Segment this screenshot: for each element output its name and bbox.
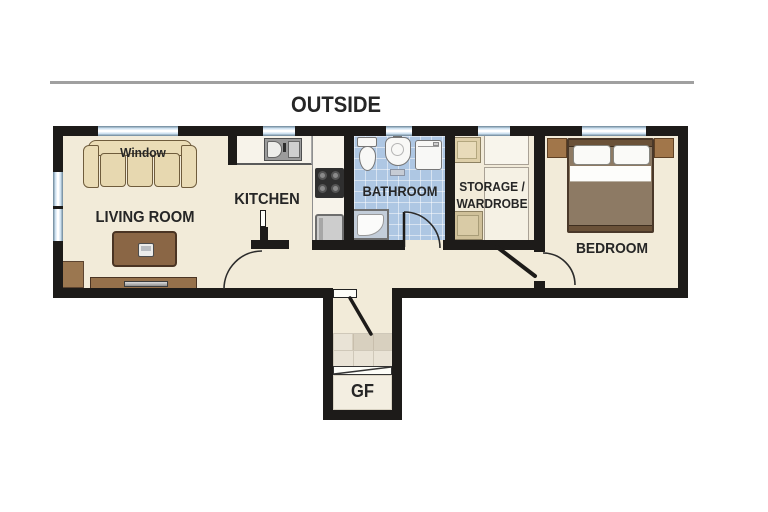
kitchen-counter-top <box>237 136 312 165</box>
vestibule-wall-right <box>392 298 402 420</box>
kitchen-label: KITCHEN <box>221 191 313 208</box>
wall-bottom-left <box>53 288 333 298</box>
window-livingroom-side-upper <box>53 172 63 206</box>
livingroom-door-stub <box>260 227 268 241</box>
front-door-leaf <box>333 366 392 375</box>
shower <box>352 209 389 240</box>
wall-bathroom-left <box>344 126 354 250</box>
kitchen-counter-right <box>312 136 345 250</box>
shower-tray <box>357 214 384 236</box>
pillow-right <box>613 145 650 165</box>
bathroom-label: BATHROOM <box>356 184 444 199</box>
nightstand-right <box>654 138 674 158</box>
sink-basin-left <box>267 141 282 158</box>
bedroom-label: BEDROOM <box>557 241 667 257</box>
outside-boundary-line <box>50 81 694 84</box>
window-livingroom <box>98 126 178 136</box>
kitchen-sink <box>264 138 302 161</box>
window-bathroom <box>386 126 412 136</box>
tv <box>124 281 168 287</box>
bed-footboard <box>569 225 652 231</box>
floor-plan-canvas: OUTSIDE Window LIVING ROOM <box>0 0 768 512</box>
outside-label: OUTSIDE <box>244 93 428 117</box>
livingroom-door-leaf <box>260 210 266 227</box>
bed-sheet <box>570 166 651 182</box>
livingroom-door-tbar <box>251 240 289 249</box>
vestibule-tile-shade <box>352 334 392 350</box>
window-livingroom-side-lower <box>53 209 63 241</box>
window-bedroom <box>582 126 646 136</box>
stove <box>315 168 344 198</box>
wall-bathroom-storage <box>445 126 455 250</box>
window-kitchen <box>263 126 295 136</box>
coffee-table <box>112 231 177 267</box>
sink-faucet <box>283 143 286 152</box>
entrance-gf-label: GF <box>335 382 389 401</box>
vestibule-wall-bottom <box>323 410 402 420</box>
wall-bedroom-stub <box>534 281 545 298</box>
wall-stub-livingroom-kitchen <box>228 126 237 165</box>
bath-mat <box>390 169 405 176</box>
storage-cabinet-top-left <box>453 137 481 163</box>
laptop-on-table <box>138 243 154 257</box>
sink-basin-right <box>288 141 300 158</box>
wall-bedroom <box>534 126 545 252</box>
nightstand-left <box>547 138 567 158</box>
bathroom-sink <box>385 137 411 166</box>
living-room-label: LIVING ROOM <box>67 209 223 226</box>
storage-label: STORAGE / WARDROBE <box>448 178 536 212</box>
wall-corridor-a <box>312 240 405 250</box>
wall-corridor-b <box>443 240 534 250</box>
window-label: Window <box>97 146 189 160</box>
window-storage <box>478 126 510 136</box>
wall-right <box>678 126 688 298</box>
pillow-left <box>573 145 611 165</box>
vestibule-wall-left <box>323 298 333 420</box>
vestibule-inner-door-leaf <box>333 289 357 298</box>
storage-cabinet-bottom-left <box>453 211 483 240</box>
washing-machine <box>415 140 442 170</box>
bed <box>567 138 654 233</box>
storage-shelf-top <box>484 135 529 165</box>
